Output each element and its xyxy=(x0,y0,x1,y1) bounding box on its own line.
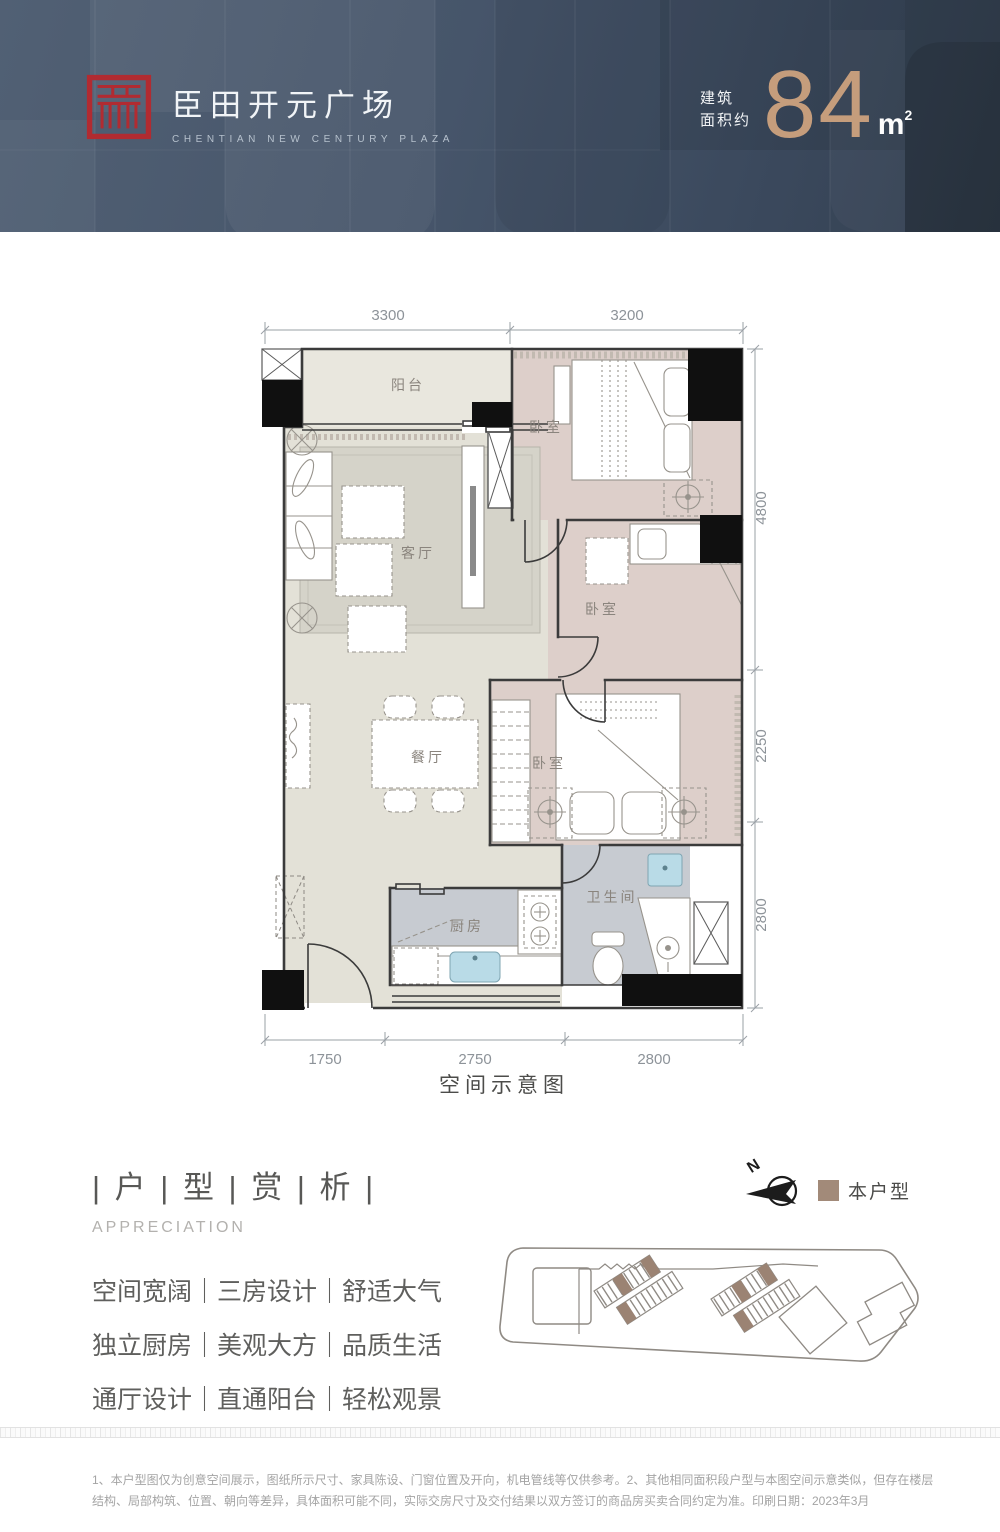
site-building-block xyxy=(779,1286,847,1354)
compass-icon: N xyxy=(740,1154,818,1216)
desk xyxy=(586,538,628,584)
pillow xyxy=(622,792,666,834)
disclaimer-text: 1、本户型图仅为创意空间展示，图纸所示尺寸、家具陈设、门窗位置及开向，机电管线等… xyxy=(92,1470,937,1512)
site-building-block xyxy=(533,1268,591,1324)
tv xyxy=(470,486,476,576)
hall-closet xyxy=(488,430,513,508)
selling-point: 空间宽阔｜三房设计｜舒适大气 xyxy=(92,1265,442,1319)
section-title: | 户 | 型 | 赏 | 析 | xyxy=(92,1162,442,1207)
plan-caption: 空间示意图 xyxy=(439,1074,569,1097)
section-subtitle: APPRECIATION xyxy=(92,1219,442,1237)
selling-point: 通厅设计｜直通阳台｜轻松观景 xyxy=(92,1373,442,1427)
coffee-table xyxy=(342,486,404,538)
area-value: 84 xyxy=(763,64,874,146)
brand-name-en: CHENTIAN NEW CENTURY PLAZA xyxy=(172,134,454,145)
room-label-bedroom-top: 卧室 xyxy=(529,419,563,435)
selling-points: 空间宽阔｜三房设计｜舒适大气 独立厨房｜美观大方｜品质生活 通厅设计｜直通阳台｜… xyxy=(92,1265,442,1427)
poster-page: 臣田开元广场 CHENTIAN NEW CENTURY PLAZA 建筑 面积约… xyxy=(0,0,1000,1532)
dining-chair xyxy=(384,696,416,718)
toilet xyxy=(593,947,623,985)
brand-lockup: 臣田开元广场 CHENTIAN NEW CENTURY PLAZA xyxy=(86,74,454,145)
pillow xyxy=(638,529,666,559)
room-label-bathroom: 卫生间 xyxy=(587,889,638,905)
side-table xyxy=(348,606,406,652)
fridge xyxy=(394,948,438,984)
dimension-right: 4800 2250 2800 xyxy=(747,345,770,1012)
pillow xyxy=(664,424,690,472)
room-label-kitchen: 厨房 xyxy=(450,918,484,934)
pillow xyxy=(570,792,614,834)
brand-name-cn: 臣田开元广场 xyxy=(172,80,454,125)
coffee-table xyxy=(336,544,392,596)
legend-swatch xyxy=(818,1180,839,1201)
room-label-living: 客厅 xyxy=(401,545,435,561)
sideboard xyxy=(286,704,310,788)
appreciation-section: | 户 | 型 | 赏 | 析 | APPRECIATION 空间宽阔｜三房设计… xyxy=(92,1162,442,1427)
stove xyxy=(518,890,562,954)
area-unit: m2 xyxy=(878,100,912,140)
dimension-bottom: 1750 2750 2800 xyxy=(261,1014,747,1068)
svg-text:N: N xyxy=(744,1156,763,1177)
dimension-top: 3300 3200 xyxy=(261,307,747,344)
wardrobe xyxy=(492,700,530,842)
brand-seal-logo xyxy=(86,74,152,140)
header-banner: 臣田开元广场 CHENTIAN NEW CENTURY PLAZA 建筑 面积约… xyxy=(0,0,1000,232)
decorative-strip xyxy=(0,1427,1000,1438)
pillow xyxy=(664,368,690,416)
svg-text:3300: 3300 xyxy=(371,307,404,324)
dresser xyxy=(554,366,570,424)
dining-chair xyxy=(384,790,416,812)
floor-plan: 阳台 客厅 卧室 卧室 卧室 餐厅 厨房 卫生间 3300 3200 xyxy=(240,295,775,1110)
dining-chair xyxy=(432,696,464,718)
legend-label: 本户型 xyxy=(848,1177,911,1204)
dining-chair xyxy=(432,790,464,812)
svg-text:3200: 3200 xyxy=(610,307,643,324)
room-label-balcony: 阳台 xyxy=(391,377,425,393)
area-prefix-label: 建筑 面积约 xyxy=(700,88,751,132)
selling-point: 独立厨房｜美观大方｜品质生活 xyxy=(92,1319,442,1373)
svg-text:2800: 2800 xyxy=(637,1051,670,1068)
toilet-tank xyxy=(592,932,624,946)
area-callout: 建筑 面积约 84 m2 xyxy=(700,64,912,146)
svg-text:2250: 2250 xyxy=(753,729,770,762)
svg-text:2800: 2800 xyxy=(753,898,770,931)
room-label-bedroom-middle: 卧室 xyxy=(585,601,619,617)
svg-text:2750: 2750 xyxy=(458,1051,491,1068)
svg-text:1750: 1750 xyxy=(308,1051,341,1068)
legend-this-unit: 本户型 xyxy=(818,1177,911,1204)
room-label-dining: 餐厅 xyxy=(411,749,445,765)
svg-text:4800: 4800 xyxy=(753,491,770,524)
site-building-cluster xyxy=(594,1250,683,1330)
room-label-bedroom-lower: 卧室 xyxy=(532,755,566,771)
site-plan xyxy=(483,1236,925,1388)
